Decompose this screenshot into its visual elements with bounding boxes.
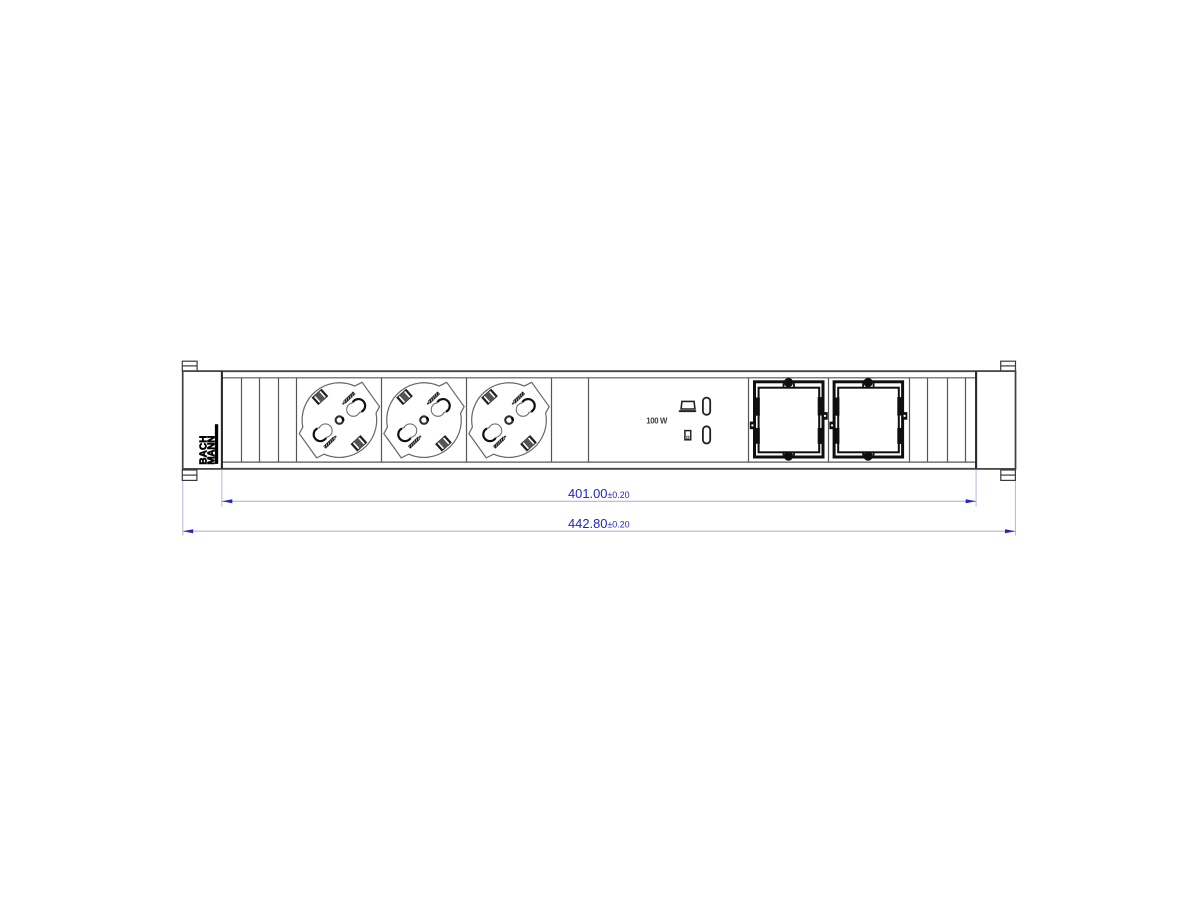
svg-text:100 W: 100 W	[646, 416, 668, 425]
svg-text:BACHMANN: BACHMANN	[199, 436, 218, 465]
